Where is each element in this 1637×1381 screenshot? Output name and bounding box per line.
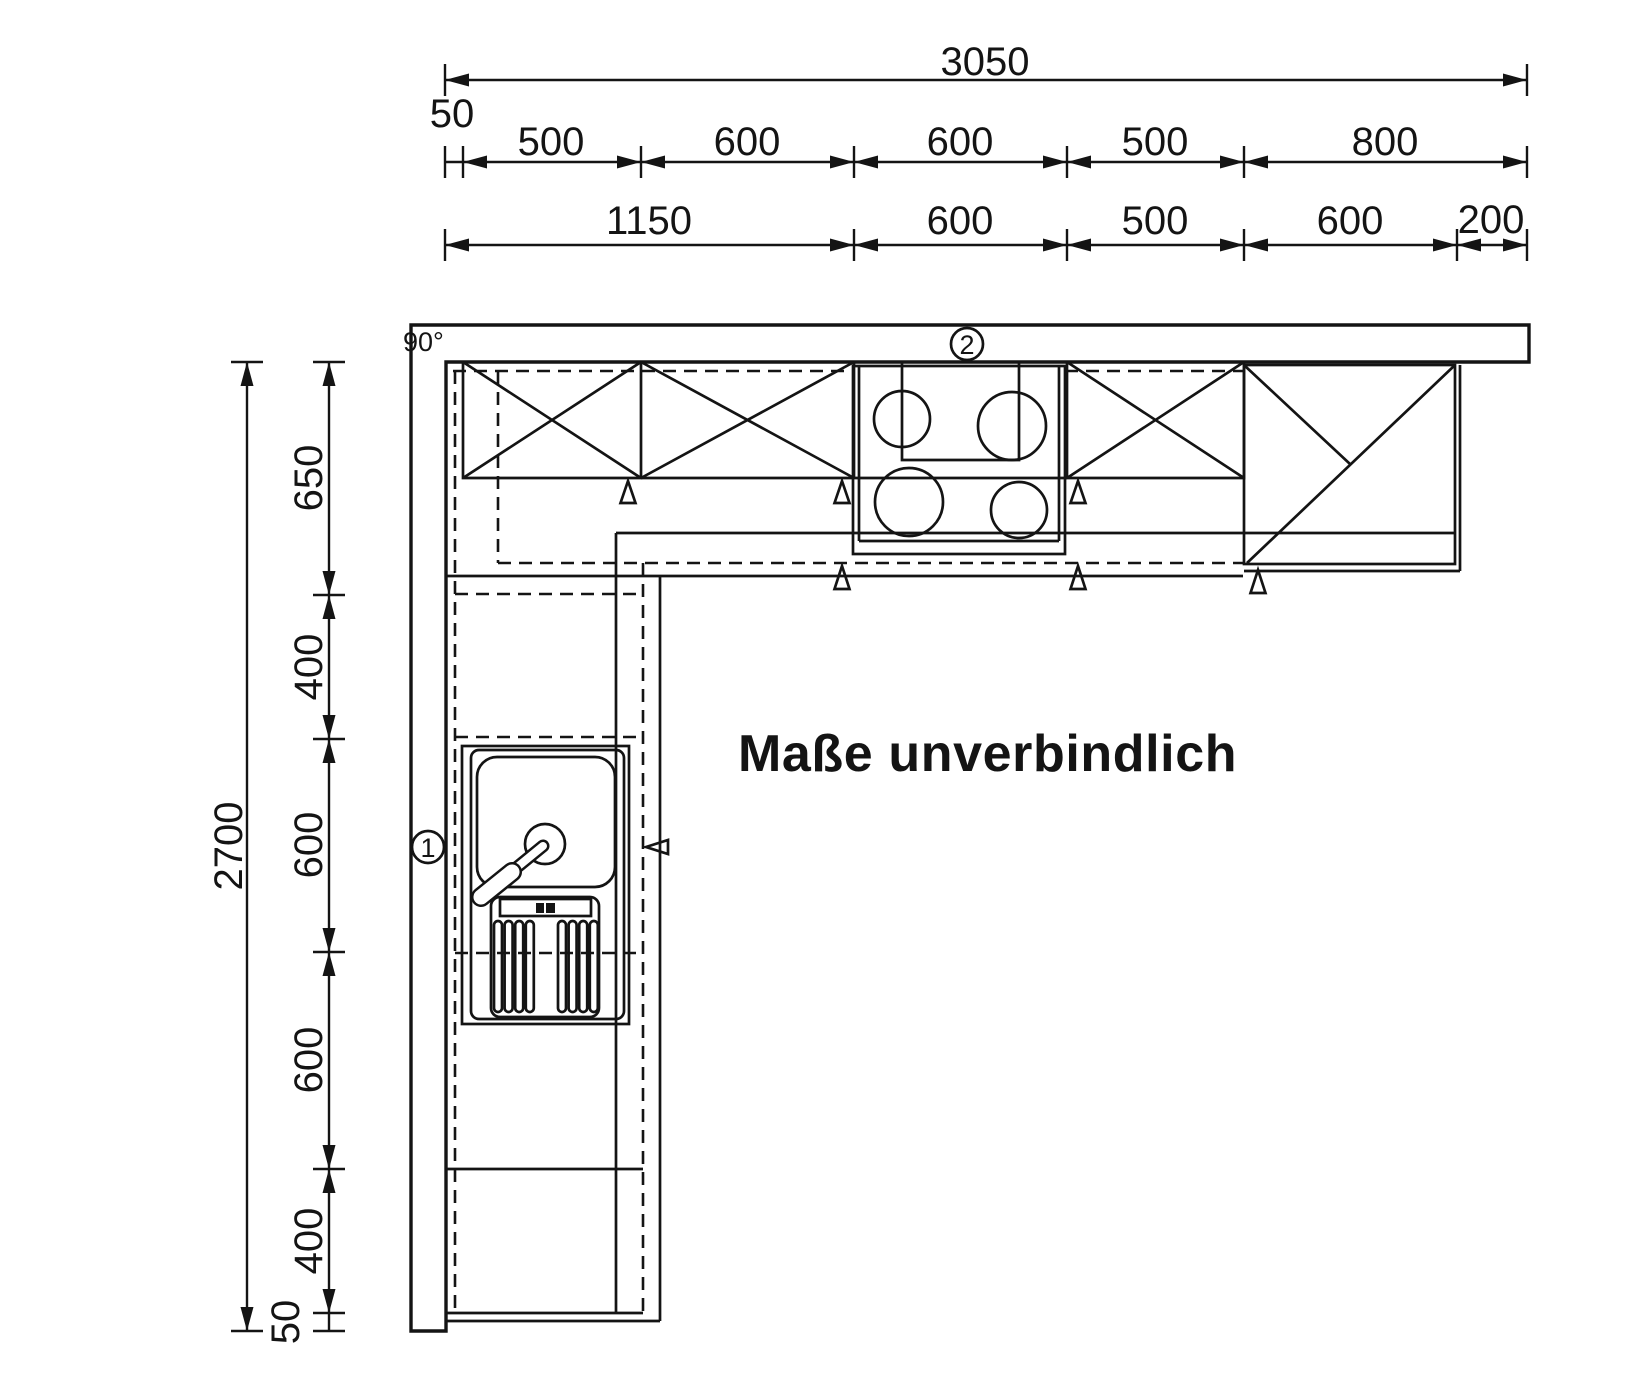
svg-text:200: 200 <box>1458 198 1525 242</box>
svg-text:1150: 1150 <box>606 199 692 243</box>
svg-text:500: 500 <box>1122 199 1189 243</box>
svg-text:600: 600 <box>714 120 781 164</box>
svg-text:400: 400 <box>287 634 331 701</box>
svg-text:800: 800 <box>1352 120 1419 164</box>
svg-text:600: 600 <box>927 199 994 243</box>
svg-text:2700: 2700 <box>207 802 251 891</box>
svg-text:50: 50 <box>264 1300 308 1345</box>
svg-text:2: 2 <box>959 330 974 360</box>
svg-text:Maße unverbindlich: Maße unverbindlich <box>738 725 1237 783</box>
svg-text:50: 50 <box>430 92 475 136</box>
svg-text:400: 400 <box>287 1208 331 1275</box>
svg-text:600: 600 <box>287 812 331 879</box>
svg-text:3050: 3050 <box>941 40 1030 84</box>
svg-text:500: 500 <box>1122 120 1189 164</box>
svg-text:90°: 90° <box>403 327 444 357</box>
svg-text:650: 650 <box>287 445 331 512</box>
svg-text:600: 600 <box>287 1027 331 1094</box>
svg-text:600: 600 <box>1317 199 1384 243</box>
svg-text:1: 1 <box>420 833 435 863</box>
svg-text:600: 600 <box>927 120 994 164</box>
svg-text:500: 500 <box>518 120 585 164</box>
